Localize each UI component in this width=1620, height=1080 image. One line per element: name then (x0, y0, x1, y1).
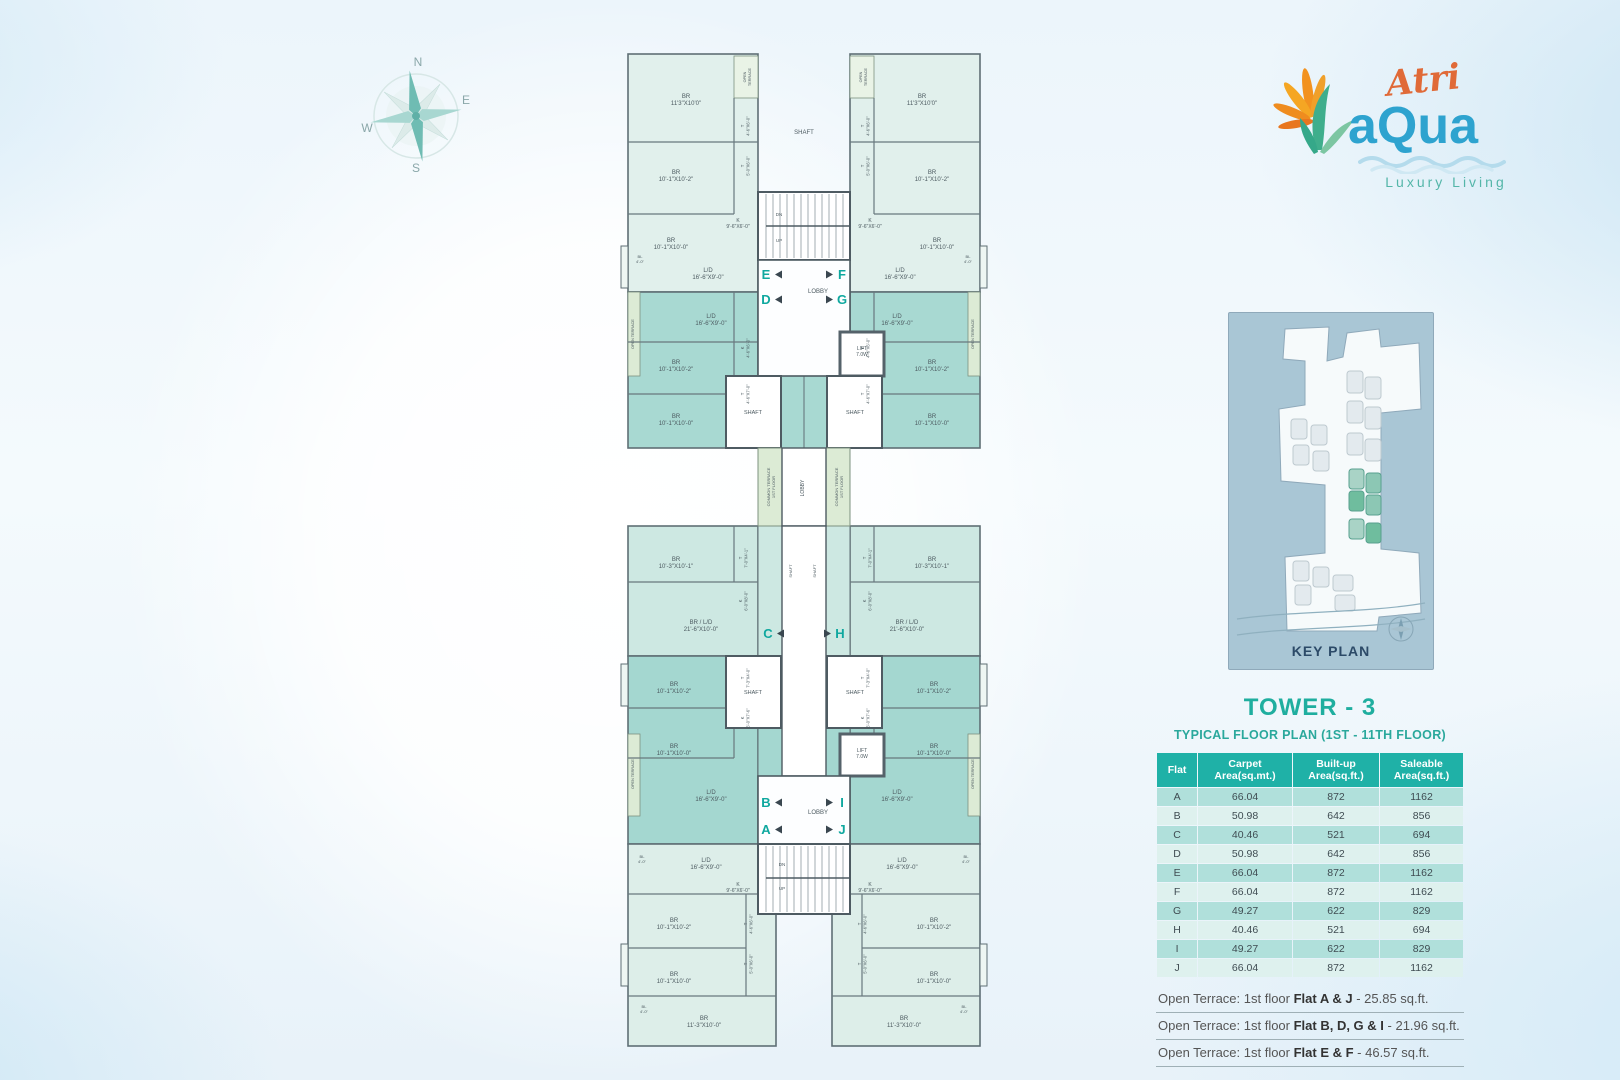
flat-letter-A: A (761, 822, 771, 837)
brand-logo: Atri aQua Luxury Living (1262, 52, 1530, 202)
room-label: SHAFT (846, 690, 865, 696)
area-table-cell: 1162 (1380, 788, 1463, 806)
compass-rose: N E S W (360, 52, 472, 174)
flat-letter-I: I (840, 795, 844, 810)
area-table-cell: 694 (1380, 921, 1463, 939)
room-label: DN (776, 212, 783, 217)
brand-tagline: Luxury Living (1366, 174, 1526, 190)
room-label: LOBBY (808, 289, 828, 295)
terrace-note: Open Terrace: 1st floor Flat E & F - 46.… (1156, 1040, 1464, 1067)
area-table-cell: 521 (1293, 826, 1379, 844)
room-label: OPEN TERRACE (631, 759, 635, 789)
room-label: SHAFT (794, 130, 814, 136)
flat-letter-F: F (838, 267, 846, 282)
tower-title: TOWER - 3 (1156, 694, 1464, 722)
room-label: SHAFT (846, 410, 865, 416)
room-label: OPEN TERRACE (971, 319, 975, 349)
area-table-row: A66.048721162 (1157, 788, 1463, 806)
area-table-cell: 872 (1293, 883, 1379, 901)
area-table-cell: 872 (1293, 864, 1379, 882)
floor-plan: SHAFTDNUPLOBBYLIFT7.0WSHAFTSHAFTCOMMON T… (616, 46, 992, 1056)
compass-w-label: W (361, 121, 373, 135)
flat-letter-H: H (835, 626, 844, 641)
area-table-cell: 40.46 (1198, 921, 1292, 939)
info-panel: TOWER - 3 TYPICAL FLOOR PLAN (1ST - 11TH… (1156, 694, 1464, 1067)
terrace-note: Open Terrace: 1st floor Flat A & J - 25.… (1156, 986, 1464, 1013)
area-col-header: Saleable Area(sq.ft.) (1380, 753, 1463, 787)
terrace-note: Open Terrace: 1st floor Flat B, D, G & I… (1156, 1013, 1464, 1040)
area-table-cell: 642 (1293, 807, 1379, 825)
area-table-cell: 66.04 (1198, 864, 1292, 882)
floor-plan-subtitle: TYPICAL FLOOR PLAN (1ST - 11TH FLOOR) (1156, 728, 1464, 742)
area-table-body: A66.048721162B50.98642856C40.46521694D50… (1157, 788, 1463, 977)
room-label: UP (776, 238, 782, 243)
area-table-cell: 829 (1380, 902, 1463, 920)
area-table-cell: 856 (1380, 845, 1463, 863)
compass-s-label: S (412, 161, 420, 174)
room-label: LOBBY (808, 810, 828, 816)
area-table-header-row: FlatCarpet Area(sq.mt.)Built-up Area(sq.… (1157, 753, 1463, 787)
room-label: SHAFT (812, 564, 817, 578)
waves-icon (1358, 156, 1518, 174)
area-table-row: I49.27622829 (1157, 940, 1463, 958)
area-table-cell: 1162 (1380, 959, 1463, 977)
flower-icon (1270, 62, 1356, 162)
key-plan-map (1229, 313, 1433, 669)
area-table-cell: H (1157, 921, 1197, 939)
area-col-header: Carpet Area(sq.mt.) (1198, 753, 1292, 787)
room-label: OPEN TERRACE (631, 319, 635, 349)
key-plan-compass-icon (1389, 617, 1413, 641)
room-label: UP (779, 886, 785, 891)
area-table: FlatCarpet Area(sq.mt.)Built-up Area(sq.… (1156, 752, 1464, 978)
area-table-cell: 40.46 (1198, 826, 1292, 844)
room-label: DN (779, 862, 786, 867)
area-table-cell: 829 (1380, 940, 1463, 958)
area-table-cell: 872 (1293, 788, 1379, 806)
area-table-cell: 521 (1293, 921, 1379, 939)
area-table-cell: 66.04 (1198, 959, 1292, 977)
area-table-cell: G (1157, 902, 1197, 920)
flat-letter-B: B (761, 795, 770, 810)
compass-e-label: E (462, 93, 470, 107)
area-table-cell: 50.98 (1198, 845, 1292, 863)
compass-major-points (364, 64, 468, 168)
flat-letter-J: J (838, 822, 845, 837)
area-table-row: H40.46521694 (1157, 921, 1463, 939)
area-table-cell: 622 (1293, 902, 1379, 920)
area-table-cell: 50.98 (1198, 807, 1292, 825)
brochure-page: N E S W (0, 0, 1620, 1080)
area-table-row: E66.048721162 (1157, 864, 1463, 882)
area-table-cell: 642 (1293, 845, 1379, 863)
area-table-cell: 66.04 (1198, 883, 1292, 901)
key-plan: KEY PLAN (1228, 312, 1434, 670)
room-label: OPEN TERRACE (971, 759, 975, 789)
room-label: LIFT7.0W (856, 748, 868, 760)
key-plan-title: KEY PLAN (1229, 643, 1433, 659)
area-table-cell: 1162 (1380, 864, 1463, 882)
flat-letter-D: D (761, 292, 770, 307)
area-col-header: Built-up Area(sq.ft.) (1293, 753, 1379, 787)
area-table-cell: 49.27 (1198, 940, 1292, 958)
area-table-cell: 66.04 (1198, 788, 1292, 806)
area-table-cell: 1162 (1380, 883, 1463, 901)
flat-letter-C: C (763, 626, 773, 641)
area-table-row: B50.98642856 (1157, 807, 1463, 825)
area-table-cell: 694 (1380, 826, 1463, 844)
room-label: SHAFT (744, 410, 763, 416)
room-label: SHAFT (788, 564, 793, 578)
area-table-cell: 872 (1293, 959, 1379, 977)
terrace-notes: Open Terrace: 1st floor Flat A & J - 25.… (1156, 986, 1464, 1067)
area-table-row: G49.27622829 (1157, 902, 1463, 920)
brand-main-text: aQua (1348, 96, 1478, 156)
area-col-header: Flat (1157, 753, 1197, 787)
area-table-cell: I (1157, 940, 1197, 958)
area-table-cell: D (1157, 845, 1197, 863)
area-table-cell: B (1157, 807, 1197, 825)
area-table-cell: 49.27 (1198, 902, 1292, 920)
area-table-row: F66.048721162 (1157, 883, 1463, 901)
area-table-row: J66.048721162 (1157, 959, 1463, 977)
compass-n-label: N (414, 55, 423, 69)
area-table-cell: 622 (1293, 940, 1379, 958)
flat-letter-G: G (837, 292, 847, 307)
area-table-cell: F (1157, 883, 1197, 901)
area-table-cell: E (1157, 864, 1197, 882)
area-table-cell: A (1157, 788, 1197, 806)
room-label: LOBBY (800, 479, 806, 496)
area-table-row: C40.46521694 (1157, 826, 1463, 844)
room-label: SHAFT (744, 690, 763, 696)
area-table-cell: J (1157, 959, 1197, 977)
area-table-cell: C (1157, 826, 1197, 844)
area-table-cell: 856 (1380, 807, 1463, 825)
area-table-row: D50.98642856 (1157, 845, 1463, 863)
flat-letter-E: E (762, 267, 771, 282)
